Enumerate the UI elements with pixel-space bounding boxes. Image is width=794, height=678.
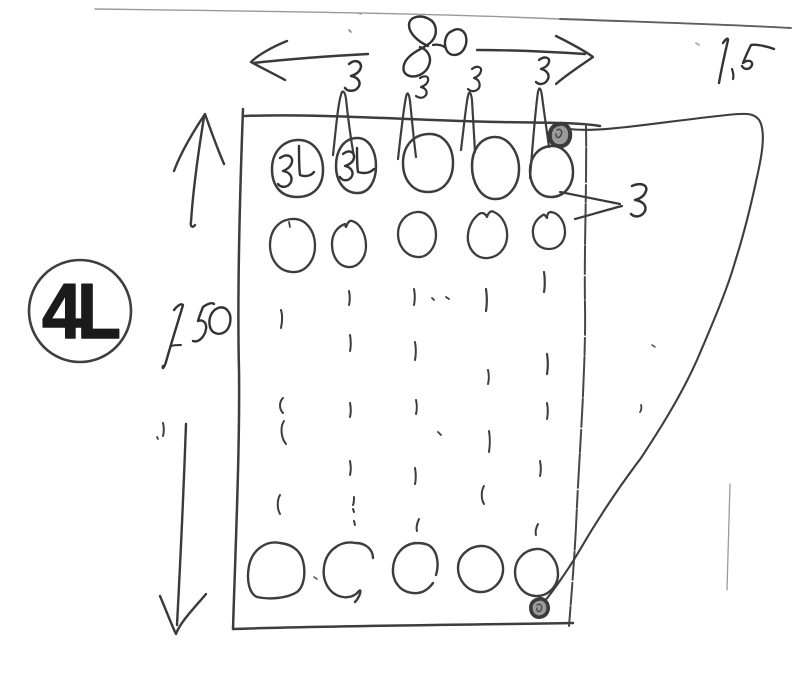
svg-text:4L: 4L	[42, 267, 119, 354]
